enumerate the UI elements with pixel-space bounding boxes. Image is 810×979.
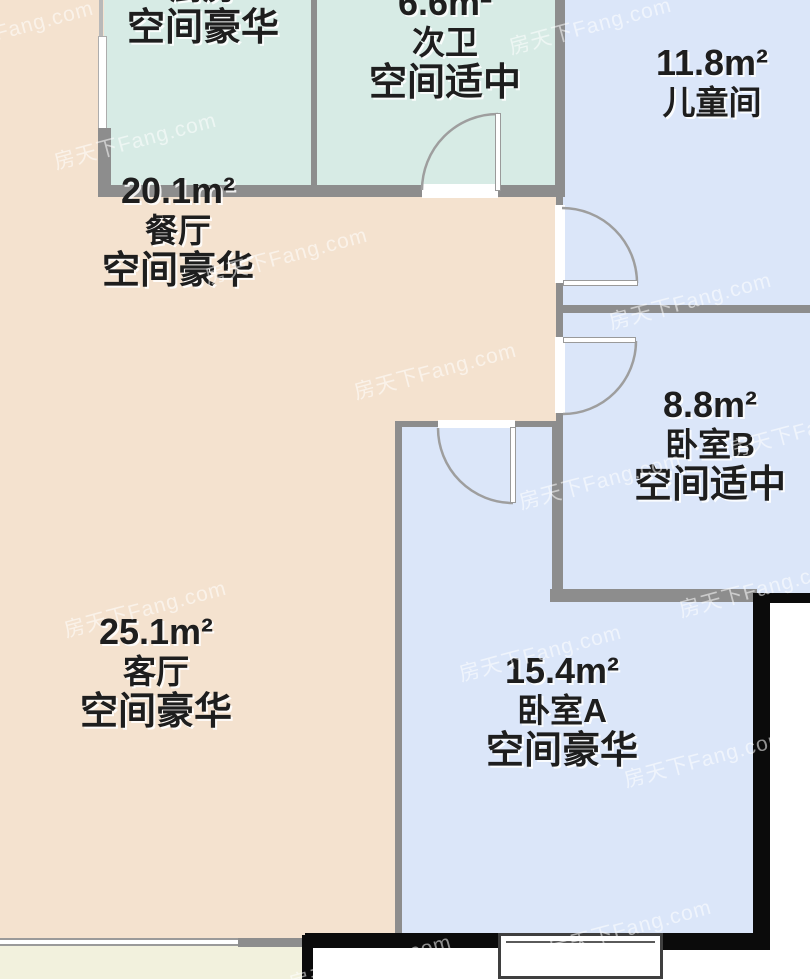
door-opening-bath bbox=[422, 184, 498, 198]
room-label-bedroom-b: 8.8m² 卧室B 空间适中 bbox=[634, 385, 786, 505]
dining-area: 20.1m² bbox=[102, 171, 254, 211]
bedroom-a-name: 卧室A bbox=[486, 691, 638, 731]
room-label-living: 25.1m² 客厅 空间豪华 bbox=[80, 612, 232, 732]
living-area: 25.1m² bbox=[80, 612, 232, 652]
room-label-kids: 11.8m² 儿童间 bbox=[656, 43, 768, 123]
room-balcony-fill bbox=[0, 946, 302, 979]
door-leaf-bedroom-a bbox=[510, 427, 516, 503]
wall-corridor-seg-c bbox=[556, 413, 563, 427]
bay-window-inner-line bbox=[506, 941, 655, 943]
door-opening-bedroom-b bbox=[555, 337, 565, 413]
wall-corridor-seg-a bbox=[556, 197, 563, 205]
wall-living-bedroom-a-divider bbox=[395, 421, 402, 938]
wall-bedroom-a-top-right bbox=[515, 421, 557, 427]
wall-black-bedroom-a-bottom bbox=[305, 933, 498, 948]
door-leaf-kids bbox=[563, 280, 638, 286]
wall-kitchen-left-thin bbox=[99, 0, 103, 37]
door-opening-bedroom-a bbox=[438, 420, 515, 428]
dining-quality: 空间豪华 bbox=[102, 251, 254, 291]
room-label-kitchen: 厨房 空间豪华 bbox=[127, 0, 279, 48]
bedroom-b-area: 8.8m² bbox=[634, 385, 786, 425]
kids-area: 11.8m² bbox=[656, 43, 768, 83]
room-label-bath2: 6.6m² 次卫 空间适中 bbox=[369, 0, 521, 103]
bedroom-a-area: 15.4m² bbox=[486, 651, 638, 691]
wall-bath-kids-divider bbox=[555, 0, 565, 197]
room-label-dining: 20.1m² 餐厅 空间豪华 bbox=[102, 171, 254, 291]
living-quality: 空间豪华 bbox=[80, 692, 232, 732]
wall-black-bottom-right-arm bbox=[663, 933, 770, 950]
room-label-bedroom-a: 15.4m² 卧室A 空间豪华 bbox=[486, 651, 638, 771]
wall-black-bottom-left-vertical bbox=[302, 935, 313, 979]
bedroom-b-quality: 空间适中 bbox=[634, 465, 786, 505]
kids-name: 儿童间 bbox=[656, 83, 768, 123]
bedroom-b-name: 卧室B bbox=[634, 425, 786, 465]
balcony-window bbox=[0, 938, 238, 946]
living-name: 客厅 bbox=[80, 652, 232, 692]
dining-name: 餐厅 bbox=[102, 211, 254, 251]
bedroom-a-bay-window bbox=[498, 933, 663, 979]
door-leaf-bath bbox=[495, 113, 501, 191]
door-leaf-bedroom-b bbox=[563, 337, 636, 343]
wall-bedroom-b-bottom bbox=[550, 589, 757, 602]
bath2-quality: 空间适中 bbox=[369, 63, 521, 103]
wall-balcony-right-seg bbox=[238, 938, 305, 947]
bedroom-a-quality: 空间豪华 bbox=[486, 731, 638, 771]
wall-bedroom-ab-divider bbox=[552, 427, 563, 590]
wall-kids-bottom bbox=[557, 305, 810, 313]
wall-black-right-vertical bbox=[753, 593, 770, 950]
bath2-area: 6.6m² bbox=[369, 0, 521, 23]
bath2-name: 次卫 bbox=[369, 23, 521, 63]
floor-plan: 厨房 空间豪华 6.6m² 次卫 空间适中 11.8m² 儿童间 20.1m² … bbox=[0, 0, 810, 979]
kitchen-quality: 空间豪华 bbox=[127, 8, 279, 48]
door-opening-kids bbox=[555, 205, 565, 283]
wall-kitchen-bath-divider bbox=[311, 0, 317, 190]
kitchen-left-opening bbox=[98, 36, 107, 129]
